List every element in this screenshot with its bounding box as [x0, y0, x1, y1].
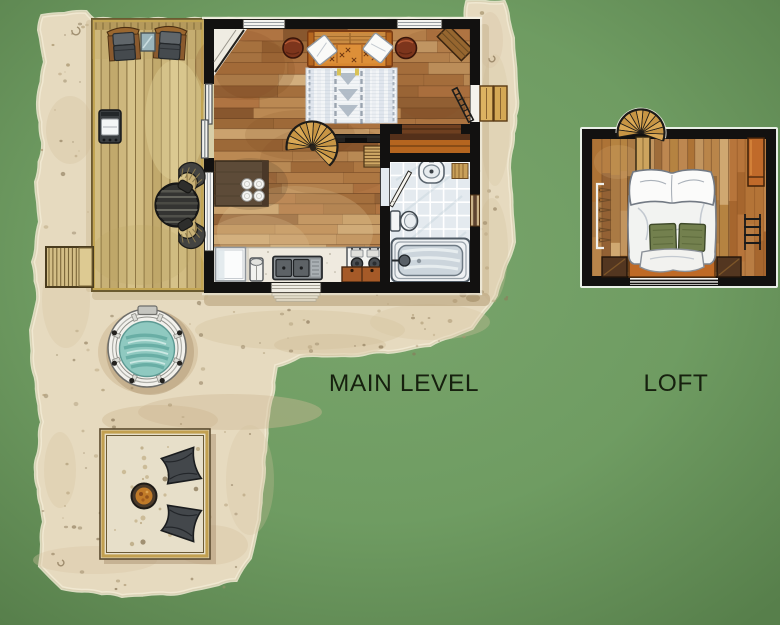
svg-text:LOFT: LOFT	[643, 370, 708, 397]
svg-text:MAIN LEVEL: MAIN LEVEL	[329, 370, 479, 397]
